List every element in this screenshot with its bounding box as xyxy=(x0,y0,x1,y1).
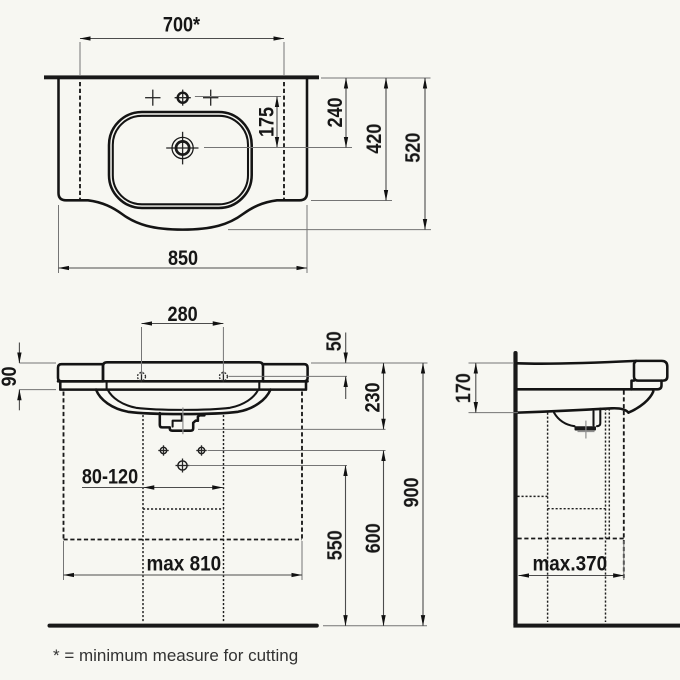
svg-text:280: 280 xyxy=(168,303,198,327)
svg-text:50: 50 xyxy=(323,331,347,351)
svg-text:175: 175 xyxy=(255,107,279,137)
svg-text:* = minimum measure for cuttin: * = minimum measure for cutting xyxy=(53,646,298,665)
svg-text:max.370: max.370 xyxy=(533,552,608,575)
svg-text:90: 90 xyxy=(0,366,21,386)
svg-text:700*: 700* xyxy=(163,13,200,37)
svg-text:420: 420 xyxy=(363,124,387,154)
svg-text:max 810: max 810 xyxy=(147,552,222,575)
svg-text:600: 600 xyxy=(362,523,386,553)
svg-text:550: 550 xyxy=(324,530,348,560)
svg-text:240: 240 xyxy=(324,97,348,127)
svg-text:900: 900 xyxy=(400,477,424,507)
svg-text:80-120: 80-120 xyxy=(82,465,138,489)
svg-text:520: 520 xyxy=(402,133,426,163)
svg-text:850: 850 xyxy=(168,247,198,271)
svg-text:170: 170 xyxy=(452,373,476,403)
svg-text:230: 230 xyxy=(361,382,385,412)
